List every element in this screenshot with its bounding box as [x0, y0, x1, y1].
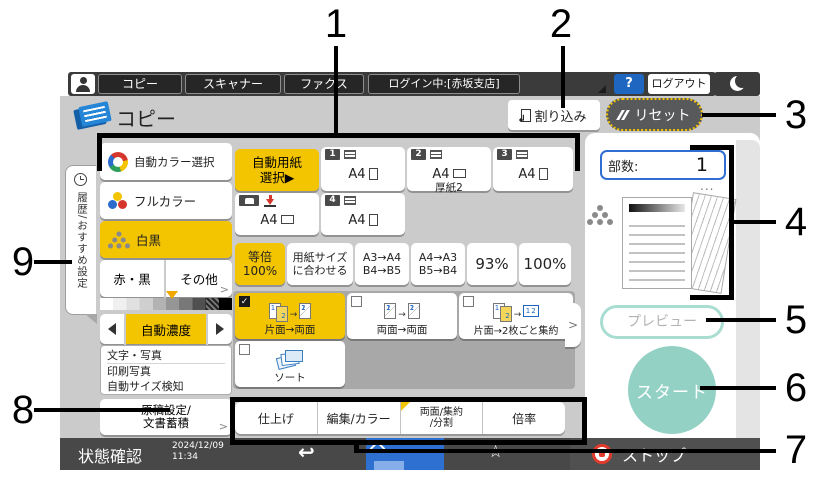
- copies-more-dots: ...: [700, 179, 714, 193]
- bypass-size: A4: [260, 213, 277, 228]
- bypass-hand-icon: [239, 195, 259, 206]
- portrait-paper-icon: [369, 214, 378, 226]
- reset-label: リセット: [635, 105, 691, 125]
- tray-2-size: A4: [432, 167, 449, 182]
- toggle-indicator: [374, 461, 404, 470]
- one-sided-to-two-sided-button[interactable]: 12 12 片面→両面: [235, 293, 345, 339]
- arrow-right-icon: [290, 302, 298, 321]
- tray-3-badge: 3: [497, 149, 512, 160]
- tab-copy[interactable]: コピー: [98, 74, 182, 94]
- user-icon-head: [80, 77, 87, 84]
- callout-line: [34, 408, 170, 412]
- ratio-100pct-button[interactable]: 100%: [519, 243, 571, 285]
- callout-line: [97, 133, 580, 138]
- combine-icon: 12 12: [459, 299, 573, 323]
- copy-app-icon: [74, 101, 112, 131]
- tab-fax[interactable]: ファクス: [284, 74, 364, 94]
- ratio-label: A4→A3: [419, 251, 457, 264]
- paper-stack-icon: [430, 150, 442, 159]
- tray-3-size: A4: [518, 167, 535, 182]
- ratio-label: B4→B5: [363, 264, 401, 277]
- top-bar: コピー スキャナー ファクス ログイン中:[赤坂支店] ? ログアウト: [68, 72, 716, 96]
- page-graphic: [622, 197, 692, 289]
- landscape-paper-icon: [281, 215, 294, 224]
- copy-app-icon-front: [78, 101, 112, 127]
- callout-line: [690, 145, 734, 150]
- callout-line: [702, 113, 776, 117]
- ratio-label: 100%: [524, 256, 567, 272]
- fit-to-paper-button[interactable]: 用紙サイズ に合わせる: [287, 243, 353, 285]
- tray-1-size: A4: [348, 167, 365, 182]
- duplex-option-label: 片面→2枚ごと集約: [459, 322, 573, 337]
- datetime-display: 2024/12/09 11:34: [172, 441, 224, 463]
- duplex-option-label: ソート: [235, 370, 345, 385]
- callout-line: [334, 46, 338, 137]
- full-color-icon: [108, 192, 128, 210]
- density-hatch-segment: [206, 298, 219, 310]
- portrait-paper-icon: [539, 168, 548, 180]
- callout-number-9: 9: [3, 240, 43, 284]
- callout-line: [97, 133, 102, 171]
- more-options-chevron[interactable]: [565, 303, 581, 347]
- tray-2-note: 厚紙2: [411, 182, 487, 194]
- chevron-right-icon: [220, 283, 229, 296]
- interrupt-icon: [521, 109, 531, 122]
- two-to-two-sided-icon: 12 12: [347, 299, 457, 323]
- original-type-printed-photo: 印刷写真: [107, 364, 225, 379]
- stop-label: ストップ: [622, 442, 686, 466]
- panel-edge-strip: [736, 140, 760, 438]
- red-black-label: 赤・黒: [113, 269, 151, 288]
- ratio-label: 93%: [475, 256, 508, 272]
- density-lighter-button[interactable]: [100, 314, 124, 344]
- time-text: 11:34: [172, 452, 224, 463]
- black-white-button[interactable]: 白黒: [100, 221, 232, 258]
- page-gradient-bar: [629, 204, 685, 212]
- duplex-option-label: 両面→両面: [347, 322, 457, 337]
- tray-2-badge: 2: [411, 149, 426, 160]
- clock-icon: [74, 173, 87, 186]
- tray-4-button[interactable]: 4 A4: [321, 193, 405, 235]
- interrupt-label: 割り込み: [534, 106, 586, 125]
- duplex-option-label: 片面→両面: [235, 322, 345, 337]
- ratio-label: 100%: [243, 264, 277, 278]
- tray-4-badge: 4: [325, 195, 340, 206]
- tray-1-button[interactable]: 1 A4: [321, 147, 405, 191]
- arrow-right-icon: [398, 302, 406, 321]
- tray-4-size: A4: [348, 213, 365, 228]
- callout-bracket: [230, 397, 587, 445]
- copies-field[interactable]: 部数: 1: [600, 150, 726, 180]
- original-type-text-photo: 文字・写真: [107, 348, 225, 364]
- ratio-label: に合わせる: [293, 264, 348, 277]
- auto-density-button[interactable]: 自動濃度: [126, 314, 206, 344]
- callout-number-1: 1: [316, 2, 356, 46]
- paper-stack-icon: [516, 150, 528, 159]
- preview-button[interactable]: プレビュー: [600, 305, 724, 339]
- ratio-label: 等倍: [248, 250, 272, 264]
- date-text: 2024/12/09: [172, 441, 224, 452]
- portrait-paper-icon: [369, 168, 378, 180]
- auto-color-icon: [108, 152, 128, 172]
- ratio-label: A3→A4: [363, 251, 401, 264]
- one-to-two-sided-icon: 12 12: [235, 299, 345, 323]
- ratio-93-button[interactable]: 93%: [467, 243, 517, 285]
- history-tab-label: 履歴/おすすめ設定: [75, 192, 90, 289]
- paper-stack-icon: [344, 196, 356, 205]
- density-darker-button[interactable]: [208, 314, 232, 344]
- callout-line: [734, 220, 776, 224]
- help-button[interactable]: ?: [614, 74, 644, 94]
- paper-feed-icon: [264, 195, 276, 207]
- auto-paper-line1: 自動用紙: [252, 155, 302, 170]
- ratio-100-button[interactable]: 等倍 100%: [235, 243, 285, 285]
- original-type-panel: 文字・写真 印刷写真 自動サイズ検知: [100, 345, 232, 395]
- stop-button[interactable]: ストップ: [570, 438, 760, 470]
- page-title: コピー: [116, 103, 176, 132]
- two-sided-to-two-sided-button[interactable]: 12 12 両面→両面: [347, 293, 457, 339]
- landscape-paper-icon: [453, 169, 466, 178]
- sort-icon: [235, 347, 345, 371]
- callout-number-3: 3: [776, 93, 815, 137]
- history-recommended-tab[interactable]: 履歴/おすすめ設定: [65, 165, 96, 315]
- density-marker-icon: [166, 291, 178, 299]
- full-color-button[interactable]: フルカラー: [100, 182, 232, 219]
- bypass-tray-button[interactable]: A4: [235, 193, 319, 235]
- callout-number-5: 5: [776, 298, 815, 342]
- logout-button[interactable]: ログアウト: [648, 74, 710, 94]
- login-status: ログイン中:[赤坂支店]: [368, 74, 520, 94]
- tab-scanner[interactable]: スキャナー: [185, 74, 281, 94]
- paper-stack-icon: [344, 150, 356, 159]
- callout-line: [700, 386, 776, 390]
- status-check-button[interactable]: 状態確認: [78, 443, 142, 467]
- ratio-label: 用紙サイズ: [293, 251, 348, 264]
- sleep-mode-button[interactable]: [714, 72, 760, 96]
- corner-fold-icon: [598, 85, 606, 93]
- tray-1-badge: 1: [325, 149, 340, 160]
- callout-number-7: 7: [776, 428, 815, 472]
- user-icon[interactable]: [71, 74, 95, 94]
- callout-number-2: 2: [541, 2, 581, 46]
- moon-icon-cut: [735, 74, 749, 88]
- auto-paper-select-button[interactable]: 自動用紙 選択▶: [235, 149, 319, 191]
- sort-button[interactable]: ソート: [235, 341, 345, 387]
- callout-number-6: 6: [776, 366, 815, 410]
- auto-paper-line2: 選択▶: [260, 170, 295, 185]
- callout-line: [706, 318, 776, 322]
- full-color-label: フルカラー: [134, 191, 196, 210]
- auto-density-label: 自動濃度: [141, 320, 191, 339]
- ratio-label: B5→B4: [419, 264, 457, 277]
- page-text-lines: [629, 218, 685, 282]
- original-type-auto-size: 自動サイズ検知: [107, 379, 225, 394]
- callout-line: [575, 133, 580, 171]
- combine-two-pages-button[interactable]: 12 12 片面→2枚ごと集約: [459, 293, 573, 339]
- reset-icon: [619, 110, 627, 120]
- arrow-left-icon: [108, 323, 116, 335]
- black-white-label: 白黒: [136, 230, 161, 249]
- callout-number-8: 8: [3, 388, 43, 432]
- user-icon-body: [76, 85, 90, 92]
- arrow-right-icon: [514, 302, 522, 321]
- tab-fold-icon: [85, 314, 97, 324]
- original-settings-button[interactable]: 原稿設定/ 文書蓄積: [100, 399, 232, 435]
- density-gradient-bar[interactable]: [100, 298, 232, 310]
- callout-line: [561, 46, 565, 108]
- auto-color-select-button[interactable]: 自動カラー選択: [100, 143, 232, 180]
- stop-icon: [592, 444, 612, 464]
- interrupt-button[interactable]: 割り込み: [508, 100, 600, 130]
- annotated-copier-screenshot: コピー スキャナー ファクス ログイン中:[赤坂支店] ? ログアウト コピー …: [0, 0, 815, 486]
- callout-line: [354, 449, 776, 453]
- start-button[interactable]: スタート: [628, 346, 716, 434]
- ratio-a3-a4-button[interactable]: A3→A4 B4→B5: [355, 243, 409, 285]
- black-white-icon: [110, 231, 129, 248]
- auto-color-label: 自動カラー選択: [134, 154, 215, 170]
- callout-line: [690, 295, 734, 300]
- copies-label: 部数:: [602, 156, 638, 175]
- other-color-label: その他: [180, 269, 218, 288]
- copies-value: 1: [638, 154, 724, 176]
- tray-2-button[interactable]: 2 A4 厚紙2: [407, 147, 491, 191]
- tray-3-button[interactable]: 3 A4: [493, 147, 573, 191]
- chevron-right-icon: [219, 420, 228, 433]
- output-preview-image: [622, 193, 730, 293]
- red-black-button[interactable]: 赤・黒: [100, 260, 164, 297]
- original-settings-line2: 文書蓄積: [143, 417, 189, 430]
- arrow-right-icon: [216, 323, 224, 335]
- reset-button[interactable]: リセット: [606, 98, 703, 131]
- callout-number-4: 4: [776, 200, 815, 244]
- ratio-a4-a3-button[interactable]: A4→A3 B5→B4: [411, 243, 465, 285]
